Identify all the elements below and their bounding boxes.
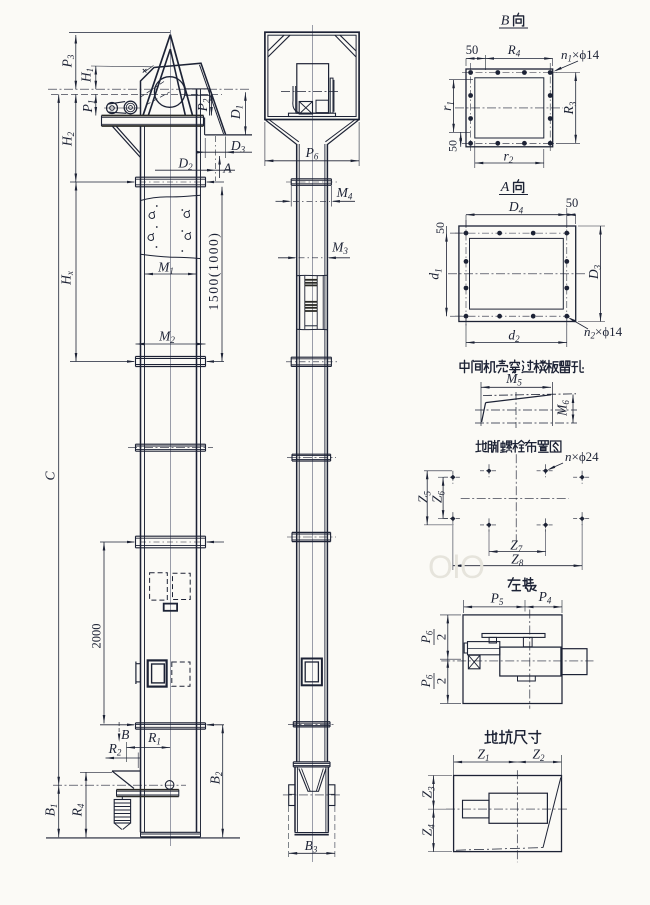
svg-text:B: B [501,14,510,29]
svg-text:A: A [500,180,510,195]
svg-text:2000: 2000 [90,624,104,649]
svg-text:50: 50 [433,222,447,234]
svg-text:50: 50 [446,140,460,152]
svg-text:1500(1000): 1500(1000) [206,232,221,311]
svg-text:50: 50 [466,43,479,57]
svg-text:B: B [121,727,129,742]
svg-text:A: A [222,161,232,176]
svg-text:50: 50 [566,196,579,210]
svg-text:n2×ϕ14: n2×ϕ14 [584,324,623,341]
svg-text:C: C [43,471,58,481]
svg-text:n1×ϕ14: n1×ϕ14 [561,47,600,64]
svg-text:2: 2 [434,678,449,685]
svg-text:OlO: OlO [428,549,485,585]
svg-text:n×ϕ24: n×ϕ24 [565,449,599,464]
svg-text:2: 2 [434,634,449,641]
